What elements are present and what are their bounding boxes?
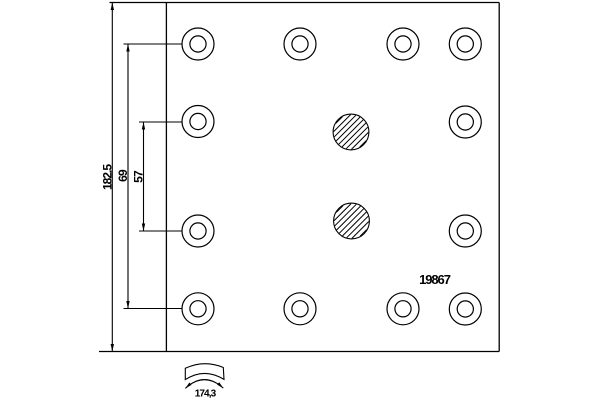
svg-text:19867: 19867 xyxy=(419,272,451,287)
svg-text:182.5: 182.5 xyxy=(100,164,114,190)
svg-text:57: 57 xyxy=(132,170,146,183)
svg-text:174,3: 174,3 xyxy=(195,389,217,400)
svg-text:69: 69 xyxy=(116,169,130,182)
